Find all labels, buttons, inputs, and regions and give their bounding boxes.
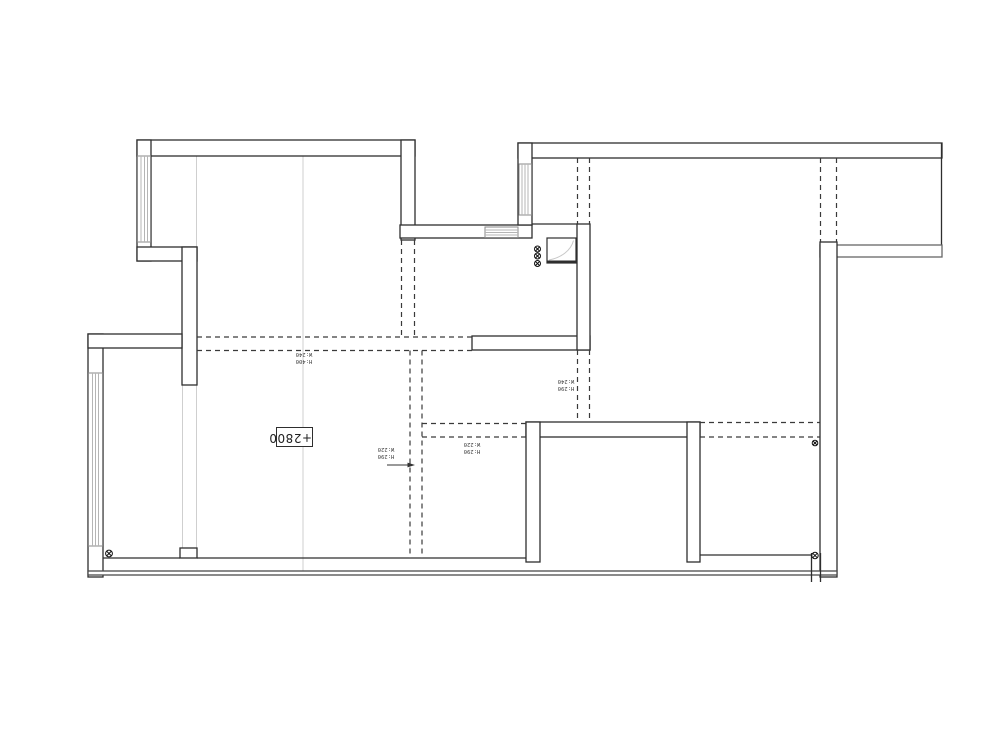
floorplan-canvas: H:400 W:240 H:290 W:240 H:290 W:220 H:29… bbox=[0, 0, 1000, 750]
beam-size-line: W:220 bbox=[458, 441, 486, 448]
beam-size-line: H:290 bbox=[458, 448, 486, 455]
beam-size-line: H:290 bbox=[554, 385, 578, 392]
window-left-upper bbox=[138, 156, 151, 242]
beam-size-line: H:290 bbox=[374, 453, 398, 460]
entry-cabinet bbox=[547, 238, 576, 263]
circle-cross-marker bbox=[535, 253, 541, 259]
circle-cross-marker bbox=[812, 552, 818, 558]
floor-level-annotation: +2800 bbox=[276, 427, 313, 447]
walls bbox=[88, 140, 942, 582]
window-right-unit-left bbox=[519, 164, 532, 215]
circle-cross-symbols bbox=[106, 246, 819, 559]
floorplan-svg bbox=[0, 0, 1000, 750]
beam-size-label: H:290 W:220 bbox=[458, 441, 486, 454]
window-left-lower bbox=[89, 373, 103, 546]
leader-arrow bbox=[387, 463, 415, 468]
underlay-lines bbox=[183, 156, 304, 571]
circle-cross-marker bbox=[535, 261, 541, 267]
beam-size-line: W:240 bbox=[554, 378, 578, 385]
circle-cross-marker bbox=[812, 440, 818, 446]
beam-size-label: H:290 W:240 bbox=[554, 378, 578, 391]
window-mid-horizontal bbox=[485, 227, 518, 238]
beam-size-label: H:400 W:240 bbox=[290, 351, 318, 364]
beam-size-label: H:290 W:220 bbox=[374, 446, 398, 459]
circle-cross-marker bbox=[535, 246, 541, 252]
circle-cross-marker bbox=[106, 550, 113, 557]
beam-size-line: W:240 bbox=[290, 351, 318, 358]
beam-size-line: H:400 bbox=[290, 358, 318, 365]
beam-size-line: W:220 bbox=[374, 446, 398, 453]
